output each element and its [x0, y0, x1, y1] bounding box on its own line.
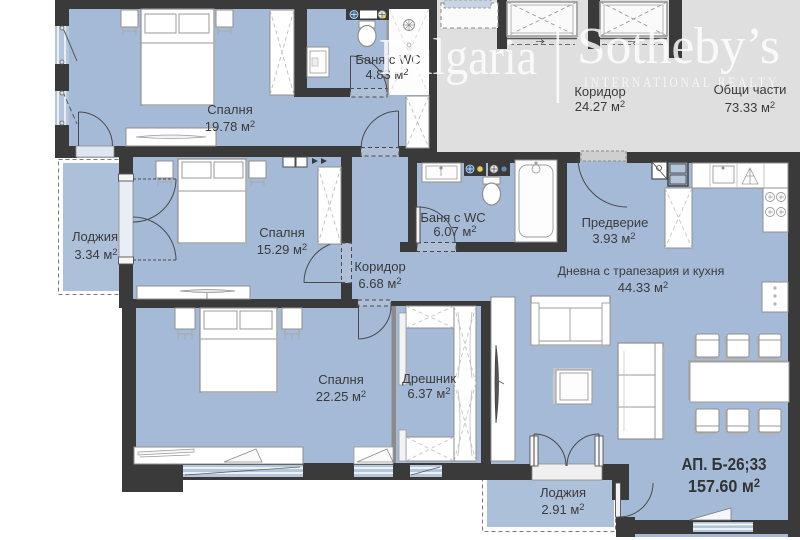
- svg-text:Sotheby’s: Sotheby’s: [577, 18, 780, 75]
- svg-text:Спалня: Спалня: [318, 372, 363, 387]
- svg-text:Дрешник: Дрешник: [402, 371, 456, 386]
- svg-text:2.91 м2: 2.91 м2: [541, 502, 584, 517]
- svg-text:Лоджия: Лоджия: [72, 229, 118, 244]
- svg-text:Bulgaria: Bulgaria: [379, 29, 537, 86]
- svg-text:Баня с WC: Баня с WC: [420, 210, 485, 225]
- svg-text:3.34 м2: 3.34 м2: [74, 247, 117, 262]
- svg-text:Лоджия: Лоджия: [540, 485, 586, 500]
- svg-text:Предверие: Предверие: [582, 215, 649, 230]
- svg-text:6.37 м2: 6.37 м2: [407, 386, 450, 401]
- svg-text:Спалня: Спалня: [207, 102, 252, 117]
- svg-text:22.25 м2: 22.25 м2: [316, 389, 366, 404]
- svg-text:АП. Б-26;33: АП. Б-26;33: [682, 454, 767, 474]
- svg-text:73.33 м2: 73.33 м2: [725, 100, 775, 115]
- svg-text:Дневна с трапезария и кухня: Дневна с трапезария и кухня: [558, 264, 725, 278]
- svg-text:157.60 м2: 157.60 м2: [688, 476, 760, 496]
- svg-text:15.29 м2: 15.29 м2: [257, 242, 307, 257]
- svg-text:INTERNATIONAL REALTY: INTERNATIONAL REALTY: [584, 75, 779, 91]
- svg-text:24.27 м2: 24.27 м2: [575, 99, 625, 114]
- svg-text:6.68 м2: 6.68 м2: [358, 276, 401, 291]
- svg-text:Коридор: Коридор: [354, 259, 405, 274]
- svg-text:19.78 м2: 19.78 м2: [205, 119, 255, 134]
- svg-text:44.33 м2: 44.33 м2: [618, 280, 668, 295]
- svg-text:3.93 м2: 3.93 м2: [592, 231, 635, 246]
- svg-text:Спалня: Спалня: [259, 225, 304, 240]
- svg-text:6.07 м2: 6.07 м2: [433, 224, 476, 239]
